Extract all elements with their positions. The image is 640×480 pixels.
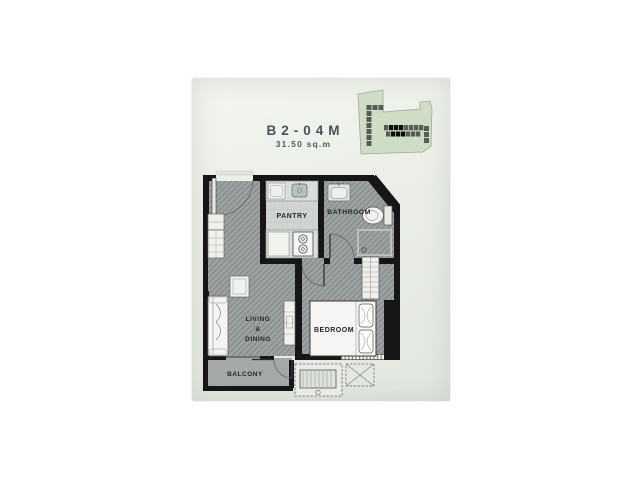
ac-ledge <box>295 364 342 396</box>
refrigerator-cabinet-icon <box>208 214 224 258</box>
kitchen-sink-icon <box>292 183 307 198</box>
room-label-bedroom: BEDROOM <box>314 327 354 334</box>
floorplan-photo: B2-04M 31.50 sq.m <box>192 78 450 401</box>
room-label-balcony: BALCONY <box>227 371 263 378</box>
room-label-bathroom: BATHROOM <box>327 209 371 216</box>
room-label-living-2: & <box>255 326 260 333</box>
bathroom-sink-icon <box>328 183 350 201</box>
wardrobe-icon <box>362 257 379 299</box>
sofa-icon <box>208 296 228 356</box>
side-table-icon <box>230 276 249 297</box>
entry-step <box>216 171 253 175</box>
room-label-living-1: LIVING <box>246 316 271 323</box>
floor-plan: PANTRY BATHROOM LIVING & DINING BEDROOM … <box>196 170 400 400</box>
tv-console-icon <box>284 301 295 345</box>
room-label-pantry: PANTRY <box>277 213 308 220</box>
shower-icon <box>358 230 391 255</box>
building-keyplan-icon <box>354 84 448 166</box>
stove-icon <box>293 232 313 256</box>
ac-unit-position <box>346 364 374 386</box>
floorplan-photo-content: B2-04M 31.50 sq.m <box>192 78 450 401</box>
room-label-dining: DINING <box>245 336 271 343</box>
ac-condenser-icon <box>300 370 336 388</box>
